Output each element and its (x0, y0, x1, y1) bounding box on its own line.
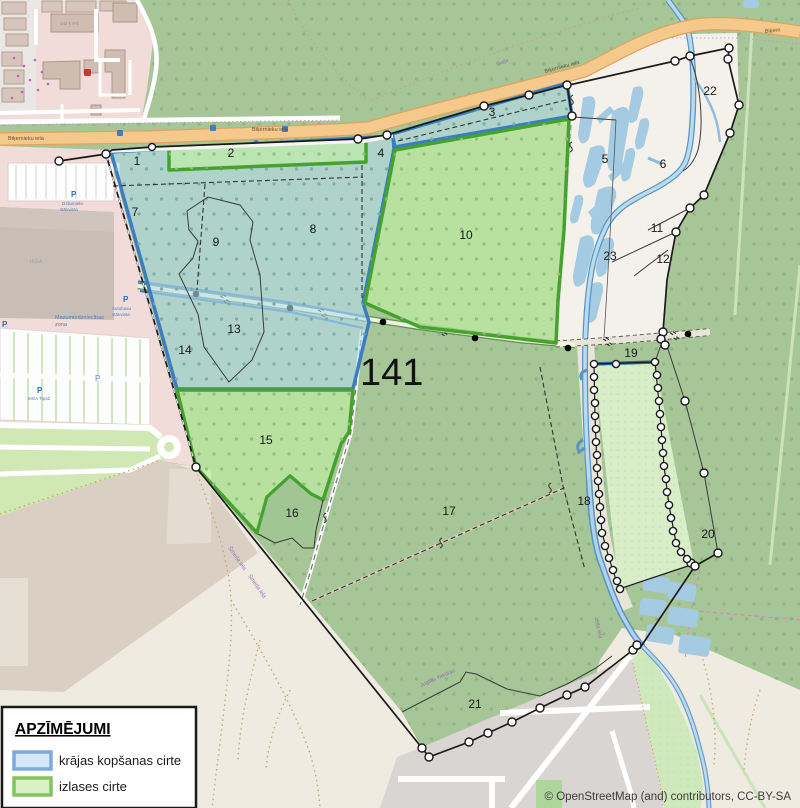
svg-text:17: 17 (442, 504, 456, 518)
svg-text:IKEA Tipa2: IKEA Tipa2 (28, 396, 51, 401)
svg-text:22: 22 (703, 84, 717, 98)
svg-text:21: 21 (468, 697, 482, 711)
svg-text:7: 7 (132, 205, 139, 219)
svg-text:10: 10 (459, 228, 473, 242)
svg-text:stāvvieta: stāvvieta (60, 207, 78, 212)
svg-text:4: 4 (378, 146, 385, 160)
svg-text:20: 20 (701, 527, 715, 541)
svg-text:Biķernieku iela: Biķernieku iela (8, 136, 45, 142)
svg-text:5: 5 (602, 152, 609, 166)
svg-text:IKEA: IKEA (30, 259, 43, 265)
svg-text:APZĪMĒJUMI: APZĪMĒJUMI (15, 721, 111, 738)
svg-text:19: 19 (624, 346, 638, 360)
svg-text:P: P (123, 295, 129, 304)
svg-text:23: 23 (603, 249, 617, 263)
svg-text:16: 16 (285, 506, 299, 520)
svg-text:P: P (37, 386, 43, 395)
svg-text:142 k 9-5: 142 k 9-5 (60, 21, 79, 26)
svg-text:P: P (2, 320, 8, 329)
svg-text:Biķernieku iela: Biķernieku iela (252, 127, 289, 133)
svg-text:zona: zona (55, 322, 68, 328)
svg-text:Mazumtirdzniecības: Mazumtirdzniecības (55, 315, 104, 321)
svg-text:P: P (71, 190, 77, 199)
svg-text:8: 8 (310, 222, 317, 236)
svg-text:12: 12 (656, 252, 670, 266)
svg-text:2: 2 (228, 146, 235, 160)
svg-text:© OpenStreetMap (and) contribu: © OpenStreetMap (and) contributors, CC-B… (545, 791, 792, 803)
svg-text:11: 11 (651, 221, 664, 235)
svg-text:Autobusu: Autobusu (112, 306, 132, 311)
svg-text:1: 1 (134, 154, 141, 168)
svg-text:6: 6 (660, 157, 667, 171)
svg-text:9: 9 (213, 235, 220, 249)
svg-text:3: 3 (489, 105, 496, 119)
svg-text:15: 15 (259, 433, 273, 447)
svg-text:krājas kopšanas cirte: krājas kopšanas cirte (59, 753, 181, 768)
svg-text:P: P (95, 374, 101, 383)
svg-text:13: 13 (227, 322, 241, 336)
svg-text:18: 18 (577, 494, 591, 508)
svg-text:141: 141 (360, 352, 423, 394)
svg-text:14: 14 (178, 343, 192, 357)
svg-text:Dziļumiela: Dziļumiela (62, 201, 83, 206)
svg-text:izlases cirte: izlases cirte (59, 779, 127, 794)
svg-text:stāvvieta: stāvvieta (112, 312, 130, 317)
